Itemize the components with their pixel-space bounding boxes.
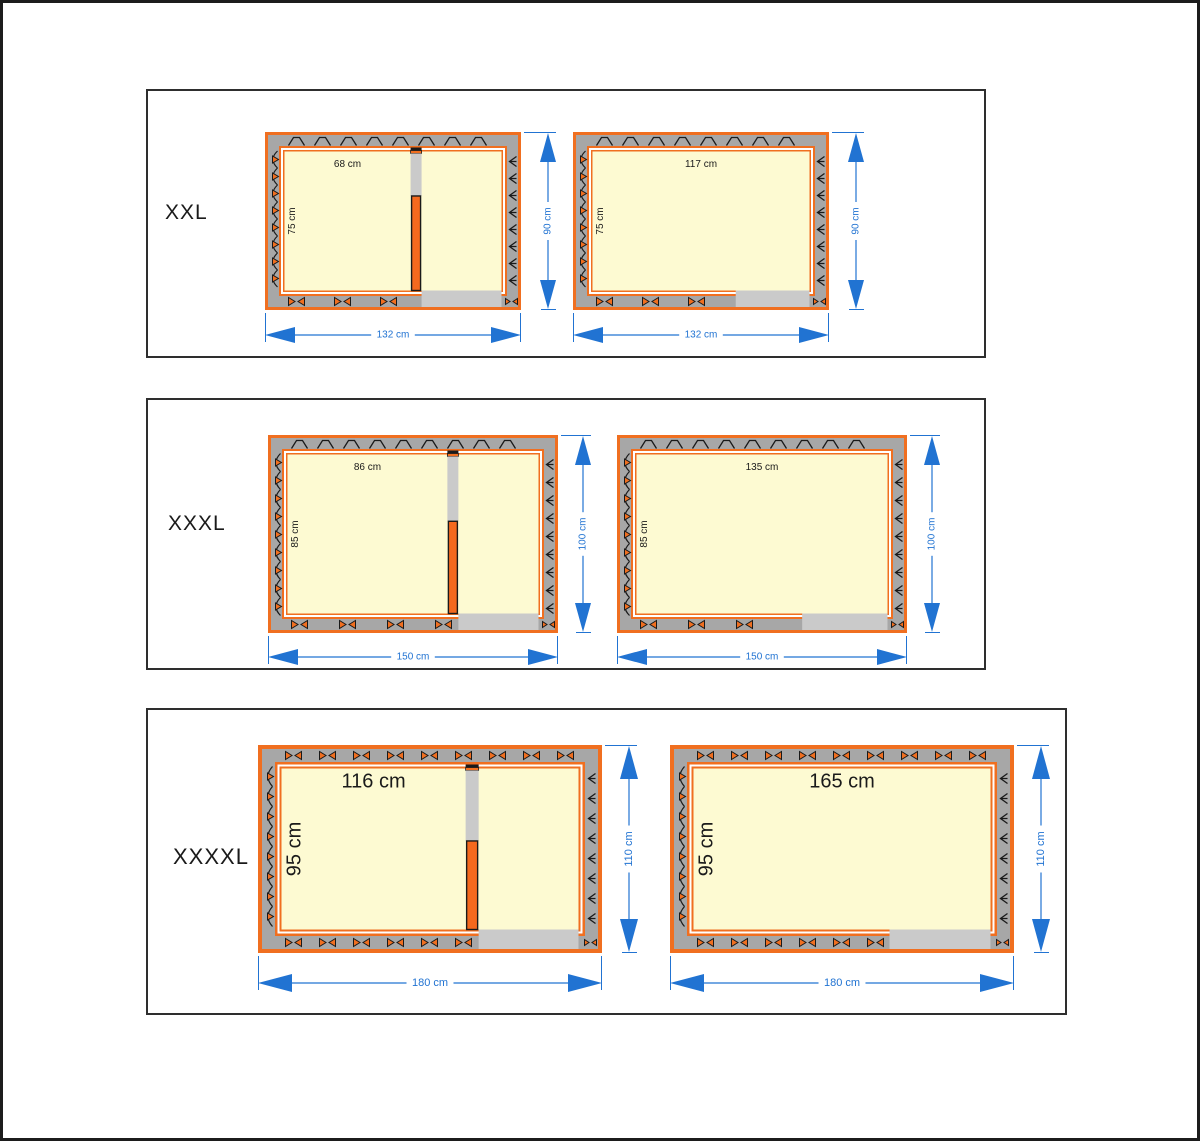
interior-floor: [288, 455, 539, 614]
size-label-xxxxl: XXXXL: [173, 844, 249, 870]
interior-height-label: 75 cm: [287, 207, 298, 234]
down-arrow: [1032, 919, 1050, 952]
outer-height-dimension-label: 90 cm: [851, 207, 862, 234]
outer-width-dimension-label: 132 cm: [685, 330, 718, 341]
left-arrow: [258, 974, 292, 992]
outer-height-dimension: 110 cm: [1017, 746, 1050, 953]
outer-height-dimension: 110 cm: [605, 746, 638, 953]
outer-width-dimension: 180 cm: [258, 956, 602, 992]
interior-width-label: 68 cm: [334, 159, 361, 170]
interior-height-label: 85 cm: [639, 520, 650, 547]
right-arrow: [799, 327, 829, 343]
outer-height-dimension: 100 cm: [561, 436, 591, 633]
interior-height-label: 85 cm: [290, 520, 301, 547]
right-wall-insulation-marks: [547, 460, 554, 614]
left-arrow: [573, 327, 603, 343]
down-arrow: [540, 280, 556, 309]
down-arrow: [620, 919, 638, 952]
up-arrow: [540, 133, 556, 162]
outer-height-dimension: 90 cm: [832, 133, 864, 310]
left-arrow: [265, 327, 295, 343]
kennel-diagram-xxl-with-partition: 68 cm75 cm132 cm90 cm: [265, 132, 591, 365]
entrance-opening: [736, 291, 810, 308]
outer-height-dimension-label: 100 cm: [927, 518, 938, 551]
up-arrow: [848, 133, 864, 162]
down-arrow: [924, 603, 940, 632]
outer-width-dimension-label: 180 cm: [824, 977, 860, 989]
partition-wall: [447, 451, 458, 614]
panel-xxxxl: XXXXL 116 cm95 cm180 cm110 cm 165 cm95 c…: [146, 708, 1067, 1015]
interior-floor: [593, 152, 810, 291]
panel-xxl: XXL 68 cm75 cm132 cm90 cm 117 cm75 cm132…: [146, 89, 986, 358]
outer-width-dimension-label: 150 cm: [397, 652, 430, 663]
outer-width-dimension-label: 150 cm: [746, 652, 779, 663]
entrance-opening: [890, 930, 991, 950]
up-arrow: [1032, 746, 1050, 779]
kennel-diagram-xxxxl-with-partition: 116 cm95 cm180 cm110 cm: [258, 745, 672, 1008]
outer-height-dimension-label: 100 cm: [578, 518, 589, 551]
up-arrow: [924, 436, 940, 465]
panel-xxxl: XXXL 86 cm85 cm150 cm100 cm 135 cm85 cm1…: [146, 398, 986, 670]
entrance-opening: [479, 930, 579, 950]
kennel-diagram-xxl-open: 117 cm75 cm132 cm90 cm: [573, 132, 899, 365]
right-arrow: [877, 649, 907, 665]
kennel-diagram-xxxl-open: 135 cm85 cm150 cm100 cm: [617, 435, 977, 688]
kennel-diagram-xxxxl-open: 165 cm95 cm180 cm110 cm: [670, 745, 1084, 1008]
outer-height-dimension-label: 110 cm: [623, 831, 635, 866]
interior-height-label: 95 cm: [284, 822, 306, 876]
drawing-canvas: XXL 68 cm75 cm132 cm90 cm 117 cm75 cm132…: [0, 0, 1200, 1141]
left-arrow: [268, 649, 298, 665]
up-arrow: [620, 746, 638, 779]
right-arrow: [568, 974, 602, 992]
left-arrow: [617, 649, 647, 665]
down-arrow: [575, 603, 591, 632]
interior-floor: [694, 769, 991, 930]
outer-width-dimension-label: 180 cm: [412, 977, 448, 989]
outer-height-dimension-label: 110 cm: [1035, 831, 1047, 866]
outer-width-dimension: 132 cm: [573, 313, 829, 343]
right-arrow: [491, 327, 521, 343]
right-arrow: [528, 649, 558, 665]
outer-width-dimension: 150 cm: [617, 636, 907, 665]
up-arrow: [575, 436, 591, 465]
outer-height-dimension: 100 cm: [910, 436, 940, 633]
interior-width-label: 165 cm: [809, 771, 875, 793]
outer-height-dimension-label: 90 cm: [543, 207, 554, 234]
entrance-opening: [802, 614, 887, 631]
outer-width-dimension-label: 132 cm: [377, 330, 410, 341]
left-arrow: [670, 974, 704, 992]
outer-height-dimension: 90 cm: [524, 133, 556, 310]
interior-width-label: 135 cm: [746, 462, 779, 473]
interior-width-label: 86 cm: [354, 462, 381, 473]
partition-wall: [466, 765, 479, 930]
interior-height-label: 75 cm: [595, 207, 606, 234]
interior-floor: [637, 455, 888, 614]
right-arrow: [980, 974, 1014, 992]
outer-width-dimension: 180 cm: [670, 956, 1014, 992]
entrance-opening: [422, 291, 502, 308]
interior-width-label: 116 cm: [342, 771, 406, 793]
interior-height-label: 95 cm: [696, 822, 718, 876]
interior-floor: [285, 152, 502, 291]
partition-wall: [411, 148, 422, 291]
size-label-xxxl: XXXL: [168, 512, 226, 536]
outer-width-dimension: 132 cm: [265, 313, 521, 343]
entrance-opening: [458, 614, 538, 631]
outer-width-dimension: 150 cm: [268, 636, 558, 665]
down-arrow: [848, 280, 864, 309]
interior-width-label: 117 cm: [685, 159, 717, 170]
kennel-diagram-xxxl-with-partition: 86 cm85 cm150 cm100 cm: [268, 435, 628, 688]
size-label-xxl: XXL: [165, 201, 208, 225]
right-wall-insulation-marks: [896, 460, 903, 614]
interior-floor: [282, 769, 579, 930]
